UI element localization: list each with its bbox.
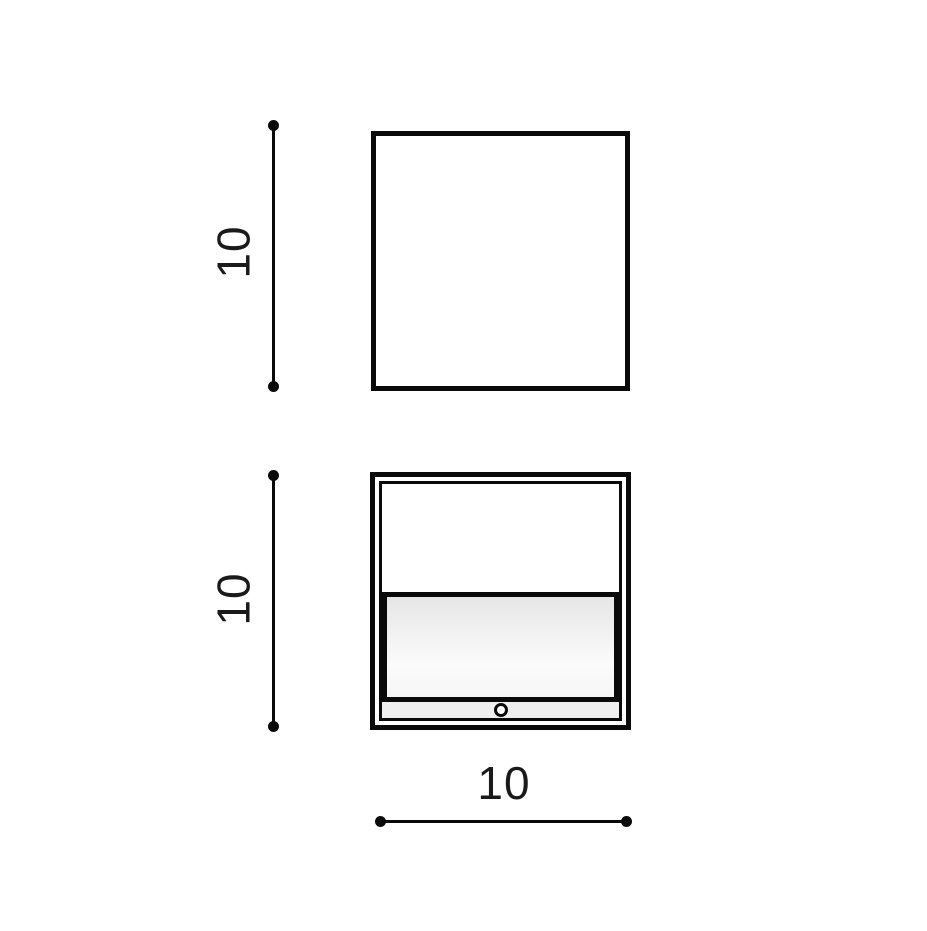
- diffuser-panel: [382, 592, 619, 702]
- dimension-endpoint-dot: [268, 120, 279, 131]
- front-view-inner-frame: [379, 481, 622, 721]
- dimension-endpoint-dot: [268, 381, 279, 392]
- dimension-line: [381, 820, 627, 823]
- mounting-hole-icon: [494, 703, 508, 717]
- dimension-label: 10: [444, 754, 564, 812]
- dimension-endpoint-dot: [621, 816, 632, 827]
- dimension-label: 10: [194, 212, 274, 292]
- top-view-outline: [371, 131, 630, 391]
- bottom-strip: [382, 702, 619, 718]
- dimension-endpoint-dot: [375, 816, 386, 827]
- dimension-label: 10: [194, 559, 274, 639]
- dimension-endpoint-dot: [268, 721, 279, 732]
- dimension-endpoint-dot: [268, 470, 279, 481]
- technical-drawing: 10 10 10: [0, 0, 927, 931]
- front-view-upper-panel: [382, 484, 619, 592]
- front-view: [370, 472, 631, 730]
